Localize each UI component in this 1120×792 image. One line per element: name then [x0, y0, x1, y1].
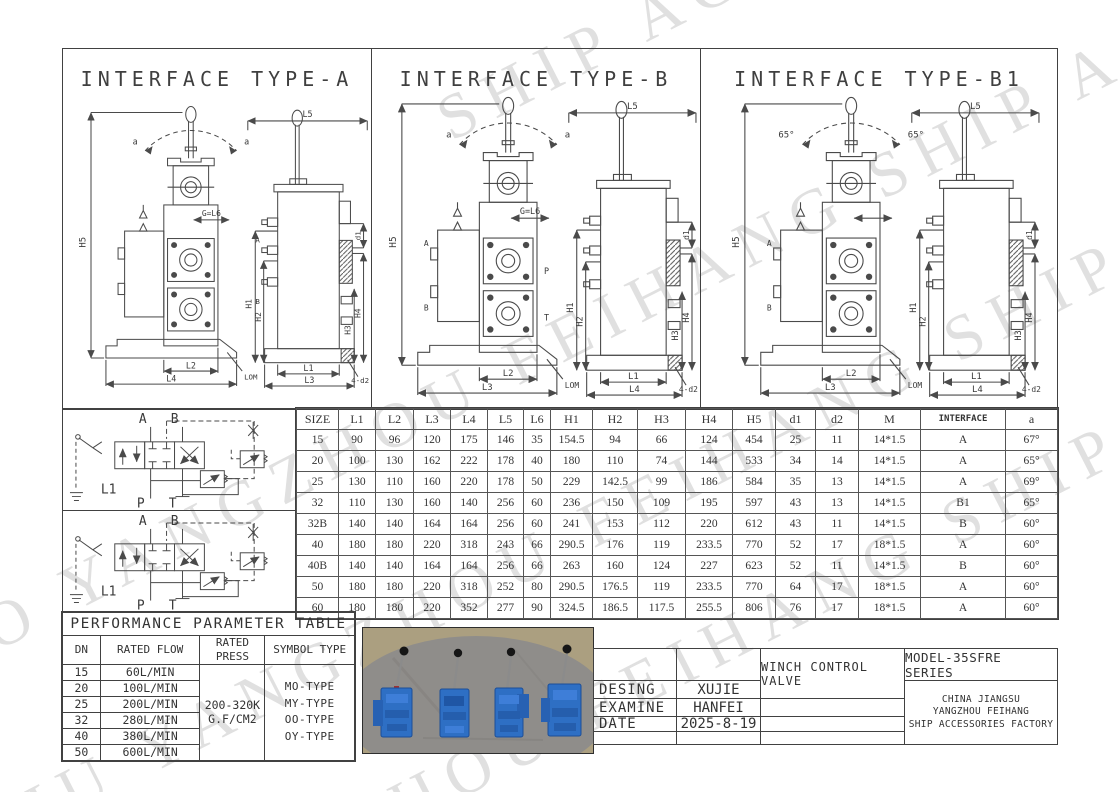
side-port-label: A	[255, 235, 260, 244]
title-block-empty-cell	[760, 698, 904, 716]
table-row: 15909612017514635154.59466124454251114*1…	[297, 430, 1058, 451]
lom-label: LOM	[565, 381, 580, 390]
table-cell: A	[921, 598, 1006, 619]
dim-label-h5: H5	[731, 236, 742, 247]
thread-label: G=L6	[202, 209, 221, 218]
table-cell: 227	[686, 556, 733, 577]
table-cell: 119	[638, 535, 686, 556]
performance-table: PERFORMANCE PARAMETER TABLE DN RATED FLO…	[62, 612, 355, 761]
column-header: L1	[339, 409, 376, 430]
table-cell: 66	[524, 535, 551, 556]
lom-leader	[890, 359, 906, 379]
table-cell: 318	[451, 535, 488, 556]
hydraulic-circuit: A B P T L1	[63, 409, 295, 510]
table-cell: 99	[638, 472, 686, 493]
table-cell: 263	[551, 556, 593, 577]
table-cell: 142.5	[593, 472, 638, 493]
title-block: WINCH CONTROL VALVE MODEL-35SFRE SERIES …	[593, 648, 1058, 745]
table-cell: 178	[488, 472, 524, 493]
table-cell: 160	[593, 556, 638, 577]
table-cell: 176.5	[593, 577, 638, 598]
adjuster-screw	[140, 205, 147, 231]
title-block-empty-cell	[676, 649, 760, 680]
column-header: INTERFACE	[921, 409, 1006, 430]
table-cell: A	[921, 472, 1006, 493]
table-cell: 14*1.5	[859, 493, 921, 514]
table-cell: 69°	[1006, 472, 1058, 493]
table-cell: 229	[551, 472, 593, 493]
table-cell: 43	[776, 493, 816, 514]
table-cell: 140	[376, 556, 414, 577]
table-cell: 14	[816, 451, 859, 472]
table-cell: 25	[297, 472, 339, 493]
table-cell: 162	[414, 451, 451, 472]
column-header: H4	[686, 409, 733, 430]
table-row: 40B1401401641642566626316012422762352111…	[297, 556, 1058, 577]
column-header-press: RATED PRESS	[200, 636, 265, 665]
table-cell: 35	[776, 472, 816, 493]
dim-label-l-outer: L3	[304, 375, 314, 385]
table-cell: 112	[638, 514, 686, 535]
column-header: SIZE	[297, 409, 339, 430]
table-cell: 584	[733, 472, 776, 493]
table-cell: 94	[593, 430, 638, 451]
table-cell: 60	[524, 493, 551, 514]
dim-label-h1: H1	[908, 303, 918, 313]
table-cell: 13	[816, 493, 859, 514]
table-cell: 60°	[1006, 577, 1058, 598]
valve-neck	[489, 161, 527, 203]
column-header: d2	[816, 409, 859, 430]
column-header-flow: RATED FLOW	[100, 636, 200, 665]
dim-label-outer: L3	[825, 383, 836, 393]
table-cell: 164	[414, 514, 451, 535]
table-cell: 770	[733, 535, 776, 556]
holes-label: 4-d2	[351, 376, 369, 385]
table-cell: 233.5	[686, 535, 733, 556]
table-cell: 623	[733, 556, 776, 577]
dim-label-h1: H1	[245, 299, 254, 309]
table-cell: 290.5	[551, 577, 593, 598]
table-cell: 25	[776, 430, 816, 451]
table-cell: 20	[297, 451, 339, 472]
table-cell: 60°	[1006, 556, 1058, 577]
table-cell: 14*1.5	[859, 451, 921, 472]
port-label: T	[544, 313, 549, 323]
table-cell: 50	[297, 577, 339, 598]
pilot-envelope	[167, 421, 255, 479]
table-cell: B1	[921, 493, 1006, 514]
port-b-label: B	[171, 412, 179, 427]
arc-label-left: a	[446, 131, 451, 141]
arc-label-right: 65°	[908, 131, 924, 141]
port-flange-hatched	[339, 240, 352, 283]
tank-symbol	[70, 493, 83, 501]
dim-label-outer: L3	[482, 383, 493, 393]
port-b-label: B	[171, 513, 179, 528]
table-cell: 18*1.5	[859, 535, 921, 556]
table-cell: 130	[376, 451, 414, 472]
table-cell: 50	[524, 472, 551, 493]
date-label: DATE	[594, 716, 676, 731]
column-header: H2	[593, 409, 638, 430]
column-header: L5	[488, 409, 524, 430]
date-value: 2025-8-19	[676, 716, 760, 731]
valve-position-2	[145, 543, 175, 570]
table-cell: 612	[733, 514, 776, 535]
table-cell: 220	[414, 577, 451, 598]
design-value: XUJIE	[676, 680, 760, 698]
valve-position-2	[145, 442, 175, 469]
table-cell: 32	[297, 493, 339, 514]
dim-label-h4: H4	[1024, 312, 1034, 322]
column-header-dn: DN	[63, 636, 101, 665]
table-cell: 66	[638, 430, 686, 451]
table-cell: 11	[816, 514, 859, 535]
side-body	[601, 188, 667, 355]
product-name: WINCH CONTROL VALVE	[760, 649, 904, 698]
symbol-type-list: MO-TYPE MY-TYPE OO-TYPE OY-TYPE	[265, 664, 355, 760]
port-label: B	[767, 304, 772, 313]
column-header: d1	[776, 409, 816, 430]
dim-label-l5: L5	[627, 102, 638, 112]
table-row: 15 60L/MIN 200-320K G.F/CM2 MO-TYPE MY-T…	[63, 664, 355, 680]
dim-label-l1: L1	[971, 372, 982, 382]
table-cell: 180	[376, 577, 414, 598]
arc-label-right: a	[565, 131, 570, 141]
table-cell: 18*1.5	[859, 598, 921, 619]
table-row: 4018018022031824366290.5176119233.577052…	[297, 535, 1058, 556]
dim-label-inner: L2	[846, 369, 857, 379]
table-cell: 76	[776, 598, 816, 619]
dim-label-h5: H5	[388, 236, 399, 247]
table-cell: 140	[451, 493, 488, 514]
table-cell: 119	[638, 577, 686, 598]
column-header: H1	[551, 409, 593, 430]
dim-label-l1: L1	[303, 363, 313, 373]
table-cell: 14*1.5	[859, 430, 921, 451]
table-cell: 18*1.5	[859, 577, 921, 598]
port-label: B	[424, 304, 429, 313]
holes-label: 4-d2	[679, 385, 698, 394]
table-cell: B	[921, 514, 1006, 535]
interface-panel-b1: INTERFACE TYPE-B1	[700, 49, 1057, 409]
holes-label: 4-d2	[1022, 385, 1041, 394]
table-cell: 60°	[1006, 514, 1058, 535]
dim-label-l-outer: L4	[629, 385, 640, 395]
flange-bolts	[171, 242, 211, 327]
table-row: 2513011016022017850229142.59918658435131…	[297, 472, 1058, 493]
dim-label-l-outer: L4	[972, 385, 983, 395]
table-row: 32B1401401641642566024115311222061243111…	[297, 514, 1058, 535]
table-cell: 220	[414, 598, 451, 619]
port-label: A	[767, 239, 772, 248]
table-cell: 160	[414, 472, 451, 493]
table-cell: 176	[593, 535, 638, 556]
table-cell: 220	[686, 514, 733, 535]
dim-label-h3: H3	[343, 325, 352, 335]
table-cell: 130	[376, 493, 414, 514]
table-row: 201001301622221784018011074144533341414*…	[297, 451, 1058, 472]
port-p-label: P	[137, 497, 145, 510]
table-cell: 186.5	[593, 598, 638, 619]
hydraulic-circuit: A B P T L1	[63, 510, 295, 612]
flange-bolts	[487, 242, 529, 333]
table-cell: 32B	[297, 514, 339, 535]
relief-block	[781, 230, 823, 321]
side-lever-knob	[292, 110, 302, 126]
table-cell: 11	[816, 556, 859, 577]
relief-block	[125, 231, 164, 317]
lom-leader	[547, 359, 563, 379]
column-header: H3	[638, 409, 686, 430]
hydraulic-schematic: A B P T L1	[62, 408, 296, 612]
port-a-label: A	[139, 412, 147, 427]
lever-knob	[846, 97, 857, 114]
table-cell: 220	[414, 535, 451, 556]
table-cell: 90	[339, 430, 376, 451]
table-cell: 352	[451, 598, 488, 619]
column-header: L4	[451, 409, 488, 430]
port-a-label: A	[139, 513, 147, 528]
table-cell: 124	[638, 556, 686, 577]
table-cell: 66	[524, 556, 551, 577]
arc-label-left: 65°	[778, 131, 794, 141]
valve-drawing: H5 65° 65° L2 L3 LOM A B L5 H1 H2 d1 H4 …	[701, 91, 1057, 401]
table-cell: 241	[551, 514, 593, 535]
table-cell: 74	[638, 451, 686, 472]
table-cell: 220	[451, 472, 488, 493]
panel-title: INTERFACE TYPE-B	[372, 67, 700, 91]
dim-label-h4: H4	[354, 308, 363, 318]
table-cell: 120	[414, 430, 451, 451]
table-cell: 256	[488, 556, 524, 577]
dim-label-inner: L2	[503, 369, 514, 379]
valve-base	[418, 345, 557, 365]
table-cell: 14*1.5	[859, 556, 921, 577]
table-cell: 533	[733, 451, 776, 472]
table-cell: 144	[686, 451, 733, 472]
dim-label-h2: H2	[918, 316, 928, 326]
throttle-symbol	[248, 523, 258, 540]
table-cell: 140	[376, 514, 414, 535]
table-cell: 65°	[1006, 451, 1058, 472]
table-cell: 117.5	[638, 598, 686, 619]
dim-label-d1: d1	[354, 231, 363, 240]
table-cell: 140	[339, 556, 376, 577]
valve-position-1	[115, 442, 145, 469]
table-cell: 14*1.5	[859, 514, 921, 535]
table-cell: 154.5	[551, 430, 593, 451]
interface-panel-a: INTERFACE TYPE-A	[63, 49, 371, 409]
table-cell: 290.5	[551, 535, 593, 556]
dim-label-h3: H3	[670, 330, 680, 340]
dim-label-inner: L2	[186, 360, 196, 370]
dim-label-h1: H1	[565, 303, 575, 313]
table-cell: B	[921, 556, 1006, 577]
table-cell: 40B	[297, 556, 339, 577]
table-cell: 100	[339, 451, 376, 472]
lom-leader	[227, 352, 242, 371]
side-body	[944, 188, 1010, 355]
table-cell: 40	[524, 451, 551, 472]
performance-table-title: PERFORMANCE PARAMETER TABLE	[63, 613, 355, 636]
table-cell: 60°	[1006, 598, 1058, 619]
table-cell: 318	[451, 577, 488, 598]
table-cell: 252	[488, 577, 524, 598]
table-cell: 164	[414, 556, 451, 577]
side-lever-knob	[959, 101, 970, 118]
table-cell: 186	[686, 472, 733, 493]
table-cell: 164	[451, 556, 488, 577]
title-block-empty-cell	[676, 731, 760, 744]
dim-label-l5: L5	[302, 109, 312, 119]
table-cell: 110	[339, 493, 376, 514]
table-cell: 256	[488, 514, 524, 535]
table-cell: 13	[816, 472, 859, 493]
table-cell: 90	[524, 598, 551, 619]
lever-port-label: L1	[101, 483, 117, 498]
table-cell: 65°	[1006, 493, 1058, 514]
table-cell: 222	[451, 451, 488, 472]
relief-block	[438, 230, 480, 321]
table-cell: 256	[488, 493, 524, 514]
valve-neck	[173, 166, 208, 205]
adjuster-screw	[454, 202, 462, 230]
table-cell: 150	[593, 493, 638, 514]
valve-base	[761, 345, 900, 365]
interface-panels: INTERFACE TYPE-A	[62, 48, 1058, 410]
table-cell: 180	[339, 577, 376, 598]
pilot-envelope	[167, 522, 255, 580]
column-header: a	[1006, 409, 1058, 430]
table-row: 5018018022031825280290.5176.5119233.5770…	[297, 577, 1058, 598]
interface-panel-b: INTERFACE TYPE-B	[371, 49, 700, 409]
table-cell: 52	[776, 556, 816, 577]
dim-label-h2: H2	[254, 312, 263, 322]
arc-label-left: a	[133, 136, 138, 146]
column-header-symbol: SYMBOL TYPE	[265, 636, 355, 665]
title-block-empty-cell	[760, 716, 904, 731]
side-lever-knob	[616, 101, 627, 118]
adjuster-screw	[797, 202, 805, 230]
table-cell: 52	[776, 535, 816, 556]
lever-knob	[186, 106, 196, 122]
port-flange-hatched	[1009, 240, 1023, 286]
table-cell: A	[921, 451, 1006, 472]
table-cell: 34	[776, 451, 816, 472]
column-header: L3	[414, 409, 451, 430]
table-cell: 14*1.5	[859, 472, 921, 493]
lever-port-label: L1	[101, 584, 117, 599]
table-cell: A	[921, 535, 1006, 556]
title-block-empty-cell	[594, 649, 676, 680]
table-cell: 454	[733, 430, 776, 451]
table-cell: 96	[376, 430, 414, 451]
table-cell: 180	[551, 451, 593, 472]
table-cell: 109	[638, 493, 686, 514]
arc-label-right: a	[244, 136, 249, 146]
size-table-header-row: SIZEL1L2L3L4L5L6H1H2H3H4H5d1d2MINTERFACE…	[297, 409, 1058, 430]
dim-label-d1: d1	[1025, 230, 1034, 240]
product-photo	[362, 627, 594, 754]
performance-table-title-row: PERFORMANCE PARAMETER TABLE	[63, 613, 355, 636]
column-header: M	[859, 409, 921, 430]
table-cell: 67°	[1006, 430, 1058, 451]
table-cell: 153	[593, 514, 638, 535]
dim-label-h4: H4	[681, 312, 691, 322]
port-t-label: T	[169, 598, 177, 611]
size-table: SIZEL1L2L3L4L5L6H1H2H3H4H5d1d2MINTERFACE…	[296, 408, 1058, 619]
table-cell: 11	[816, 430, 859, 451]
valve-position-1	[115, 543, 145, 570]
examine-value: HANFEI	[676, 698, 760, 716]
table-cell: 110	[376, 472, 414, 493]
side-port-label: B	[255, 297, 260, 306]
table-cell: 770	[733, 577, 776, 598]
valve-drawing: H5 a a G=L6 L2 L3 LOM A B P T L5 H1 H2 d…	[372, 91, 700, 401]
design-label: DESING	[594, 680, 676, 698]
table-cell: A	[921, 430, 1006, 451]
port-t-label: T	[169, 497, 177, 510]
rated-press-value: 200-320K G.F/CM2	[200, 664, 265, 760]
panel-title: INTERFACE TYPE-A	[63, 67, 371, 91]
table-cell: 236	[551, 493, 593, 514]
throttle-symbol	[248, 422, 258, 439]
table-cell: 255.5	[686, 598, 733, 619]
table-cell: 146	[488, 430, 524, 451]
table-cell: 180	[339, 535, 376, 556]
lom-label: LOM	[244, 372, 258, 381]
table-cell: 277	[488, 598, 524, 619]
table-cell: 597	[733, 493, 776, 514]
flange-bolts	[830, 242, 872, 333]
table-cell: 233.5	[686, 577, 733, 598]
table-cell: 35	[524, 430, 551, 451]
model-name: MODEL-35SFRE SERIES	[904, 649, 1057, 680]
valve-neck	[832, 161, 870, 203]
table-cell: 40	[297, 535, 339, 556]
column-header: H5	[733, 409, 776, 430]
title-block-empty-cell	[760, 731, 904, 744]
drawing-sheet: O YANGZHOU FEIHANG SHIP ACCESSORIES HU Y…	[0, 0, 1120, 792]
table-cell: 160	[414, 493, 451, 514]
table-cell: 175	[451, 430, 488, 451]
port-label: P	[544, 266, 549, 276]
valve-base	[106, 339, 237, 358]
panel-title: INTERFACE TYPE-B1	[701, 67, 1057, 91]
port-flange-hatched	[666, 240, 680, 286]
table-row: 3211013016014025660236150109195597431314…	[297, 493, 1058, 514]
dim-label-h3: H3	[1013, 330, 1023, 340]
title-block-empty-cell	[594, 731, 676, 744]
valve-drawing: H5 a a G=L6 L2 L4 LOM L5 H1 H2 d1 H4 H3 …	[63, 91, 371, 401]
column-header: L2	[376, 409, 414, 430]
table-cell: A	[921, 577, 1006, 598]
table-cell: 60°	[1006, 535, 1058, 556]
lever-knob	[503, 97, 514, 114]
table-cell: 110	[593, 451, 638, 472]
factory-name: CHINA JIANGSU YANGZHOU FEIHANG SHIP ACCE…	[904, 680, 1057, 744]
table-cell: 60	[524, 514, 551, 535]
table-cell: 195	[686, 493, 733, 514]
table-row: 6018018022035227790324.5186.5117.5255.58…	[297, 598, 1058, 619]
examine-label: EXAMINE	[594, 698, 676, 716]
table-cell: 180	[376, 598, 414, 619]
swing-arc	[802, 123, 899, 145]
dim-label-l5: L5	[970, 102, 981, 112]
table-cell: 180	[376, 535, 414, 556]
